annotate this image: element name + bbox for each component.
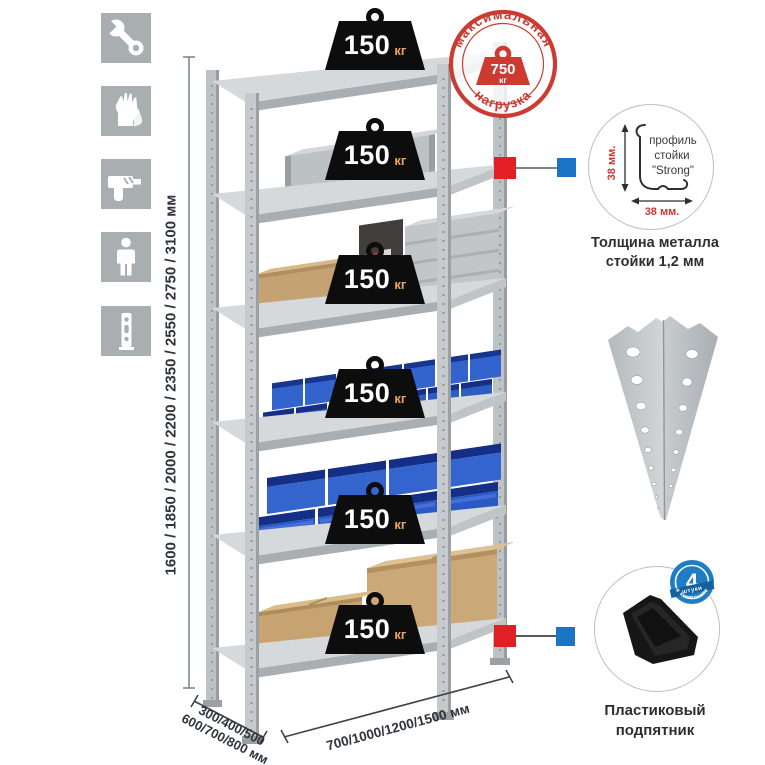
profile-callout-circle: 38 мм. 38 мм. профиль стойки "Strong" <box>588 104 714 230</box>
callout-marker-red-top <box>494 157 516 179</box>
shelf-load-badge: 150кг <box>325 592 425 662</box>
stamp-unit: кг <box>499 75 507 85</box>
load-unit: кг <box>394 277 406 292</box>
profile-text-2: стойки <box>654 150 689 162</box>
callout-marker-blue-bottom <box>556 627 575 646</box>
load-unit: кг <box>394 43 406 58</box>
max-load-stamp: максимальная нагрузка 750 кг <box>447 8 559 120</box>
load-unit: кг <box>394 391 406 406</box>
shelf-load-badge: 150кг <box>325 242 425 312</box>
profile-cross-section: 38 мм. 38 мм. профиль стойки "Strong" <box>589 105 712 228</box>
profile-text-3: "Strong" <box>652 165 694 177</box>
load-value: 150 <box>344 30 391 61</box>
load-value: 150 <box>344 264 391 295</box>
load-value: 150 <box>344 504 391 535</box>
included-count-badge: 4 штуки в комплекте <box>668 558 716 606</box>
load-unit: кг <box>394 517 406 532</box>
profile-text-1: профиль <box>649 135 697 147</box>
foot-caption-line1: Пластиковый <box>562 701 748 721</box>
shelf-load-badge: 150кг <box>325 8 425 78</box>
profile-caption: Толщина металла стойки 1,2 мм <box>562 234 748 272</box>
shelf-load-badge: 150кг <box>325 118 425 188</box>
profile-caption-line1: Толщина металла <box>562 234 748 253</box>
profile-dim-horizontal: 38 мм. <box>645 206 680 218</box>
shelf-load-badge: 150кг <box>325 356 425 426</box>
angle-post-image <box>600 302 728 534</box>
height-dimension-line <box>183 57 195 688</box>
load-unit: кг <box>394 153 406 168</box>
load-value: 150 <box>344 140 391 171</box>
profile-caption-line2: стойки 1,2 мм <box>562 253 748 272</box>
callout-line-top <box>514 167 559 169</box>
load-value: 150 <box>344 378 391 409</box>
load-unit: кг <box>394 627 406 642</box>
load-value: 150 <box>344 614 391 645</box>
height-dimension-label: 1600 / 1850 / 2000 / 2200 / 2350 / 2550 … <box>163 195 180 576</box>
foot-caption: Пластиковый подпятник <box>562 701 748 741</box>
product-diagram: 150кг 150кг 150кг 150кг 150кг 150кг макс… <box>0 0 765 765</box>
callout-marker-red-bottom <box>494 625 516 647</box>
profile-dim-vertical: 38 мм. <box>606 146 618 181</box>
callout-line-bottom <box>514 635 558 637</box>
foot-caption-line2: подпятник <box>562 721 748 741</box>
shelf-load-badge: 150кг <box>325 482 425 552</box>
callout-marker-blue-top <box>557 158 576 177</box>
